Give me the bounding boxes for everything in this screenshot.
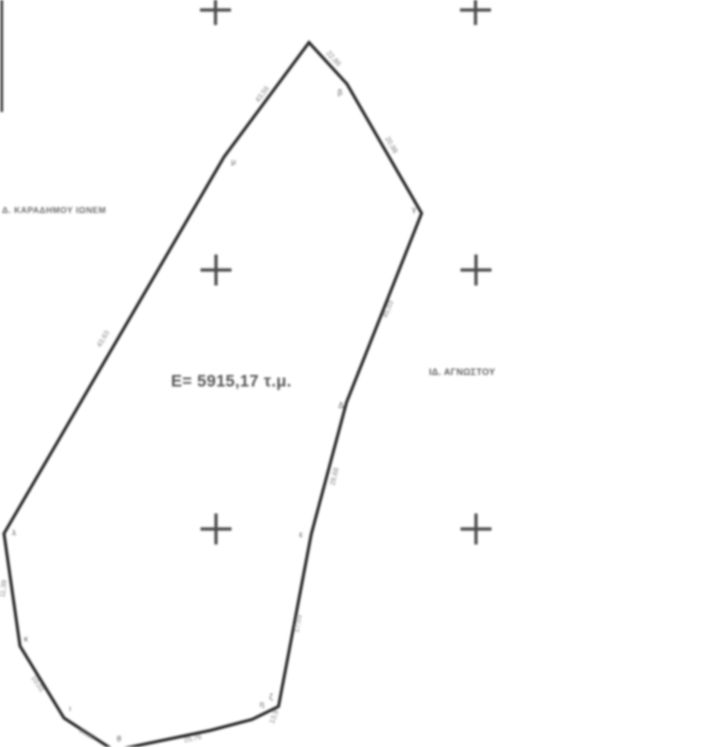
svg-text:E= 5915,17 τ.μ.: E= 5915,17 τ.μ. <box>171 373 292 391</box>
svg-text:Δ: Δ <box>338 401 344 410</box>
svg-text:Δ. ΚΑΡΑΔΗΜΟΥ ΙΩΝΕΜ: Δ. ΚΑΡΑΔΗΜΟΥ ΙΩΝΕΜ <box>2 205 106 215</box>
svg-text:11,39: 11,39 <box>0 579 9 597</box>
svg-text:17,03: 17,03 <box>292 614 304 633</box>
svg-text:43,56: 43,56 <box>253 84 271 104</box>
svg-text:25,76: 25,76 <box>183 732 202 745</box>
svg-text:43,63: 43,63 <box>94 329 111 349</box>
svg-text:22,86: 22,86 <box>324 49 343 68</box>
svg-text:γ: γ <box>412 205 416 214</box>
svg-text:ε: ε <box>299 530 303 539</box>
svg-text:θ: θ <box>117 735 122 744</box>
svg-text:μ: μ <box>231 158 236 167</box>
svg-text:10,97: 10,97 <box>77 725 97 742</box>
svg-text:ι: ι <box>69 704 71 713</box>
svg-text:ΙΔ. ΑΓΝΩΣΤΟΥ: ΙΔ. ΑΓΝΩΣΤΟΥ <box>429 367 495 377</box>
svg-text:η: η <box>260 700 264 709</box>
svg-text:λ: λ <box>12 529 16 538</box>
svg-text:β: β <box>338 88 343 97</box>
svg-text:10,01: 10,01 <box>29 674 47 694</box>
svg-text:κ: κ <box>24 635 29 644</box>
svg-text:ζ: ζ <box>269 693 273 702</box>
svg-text:45,03: 45,03 <box>380 299 395 319</box>
